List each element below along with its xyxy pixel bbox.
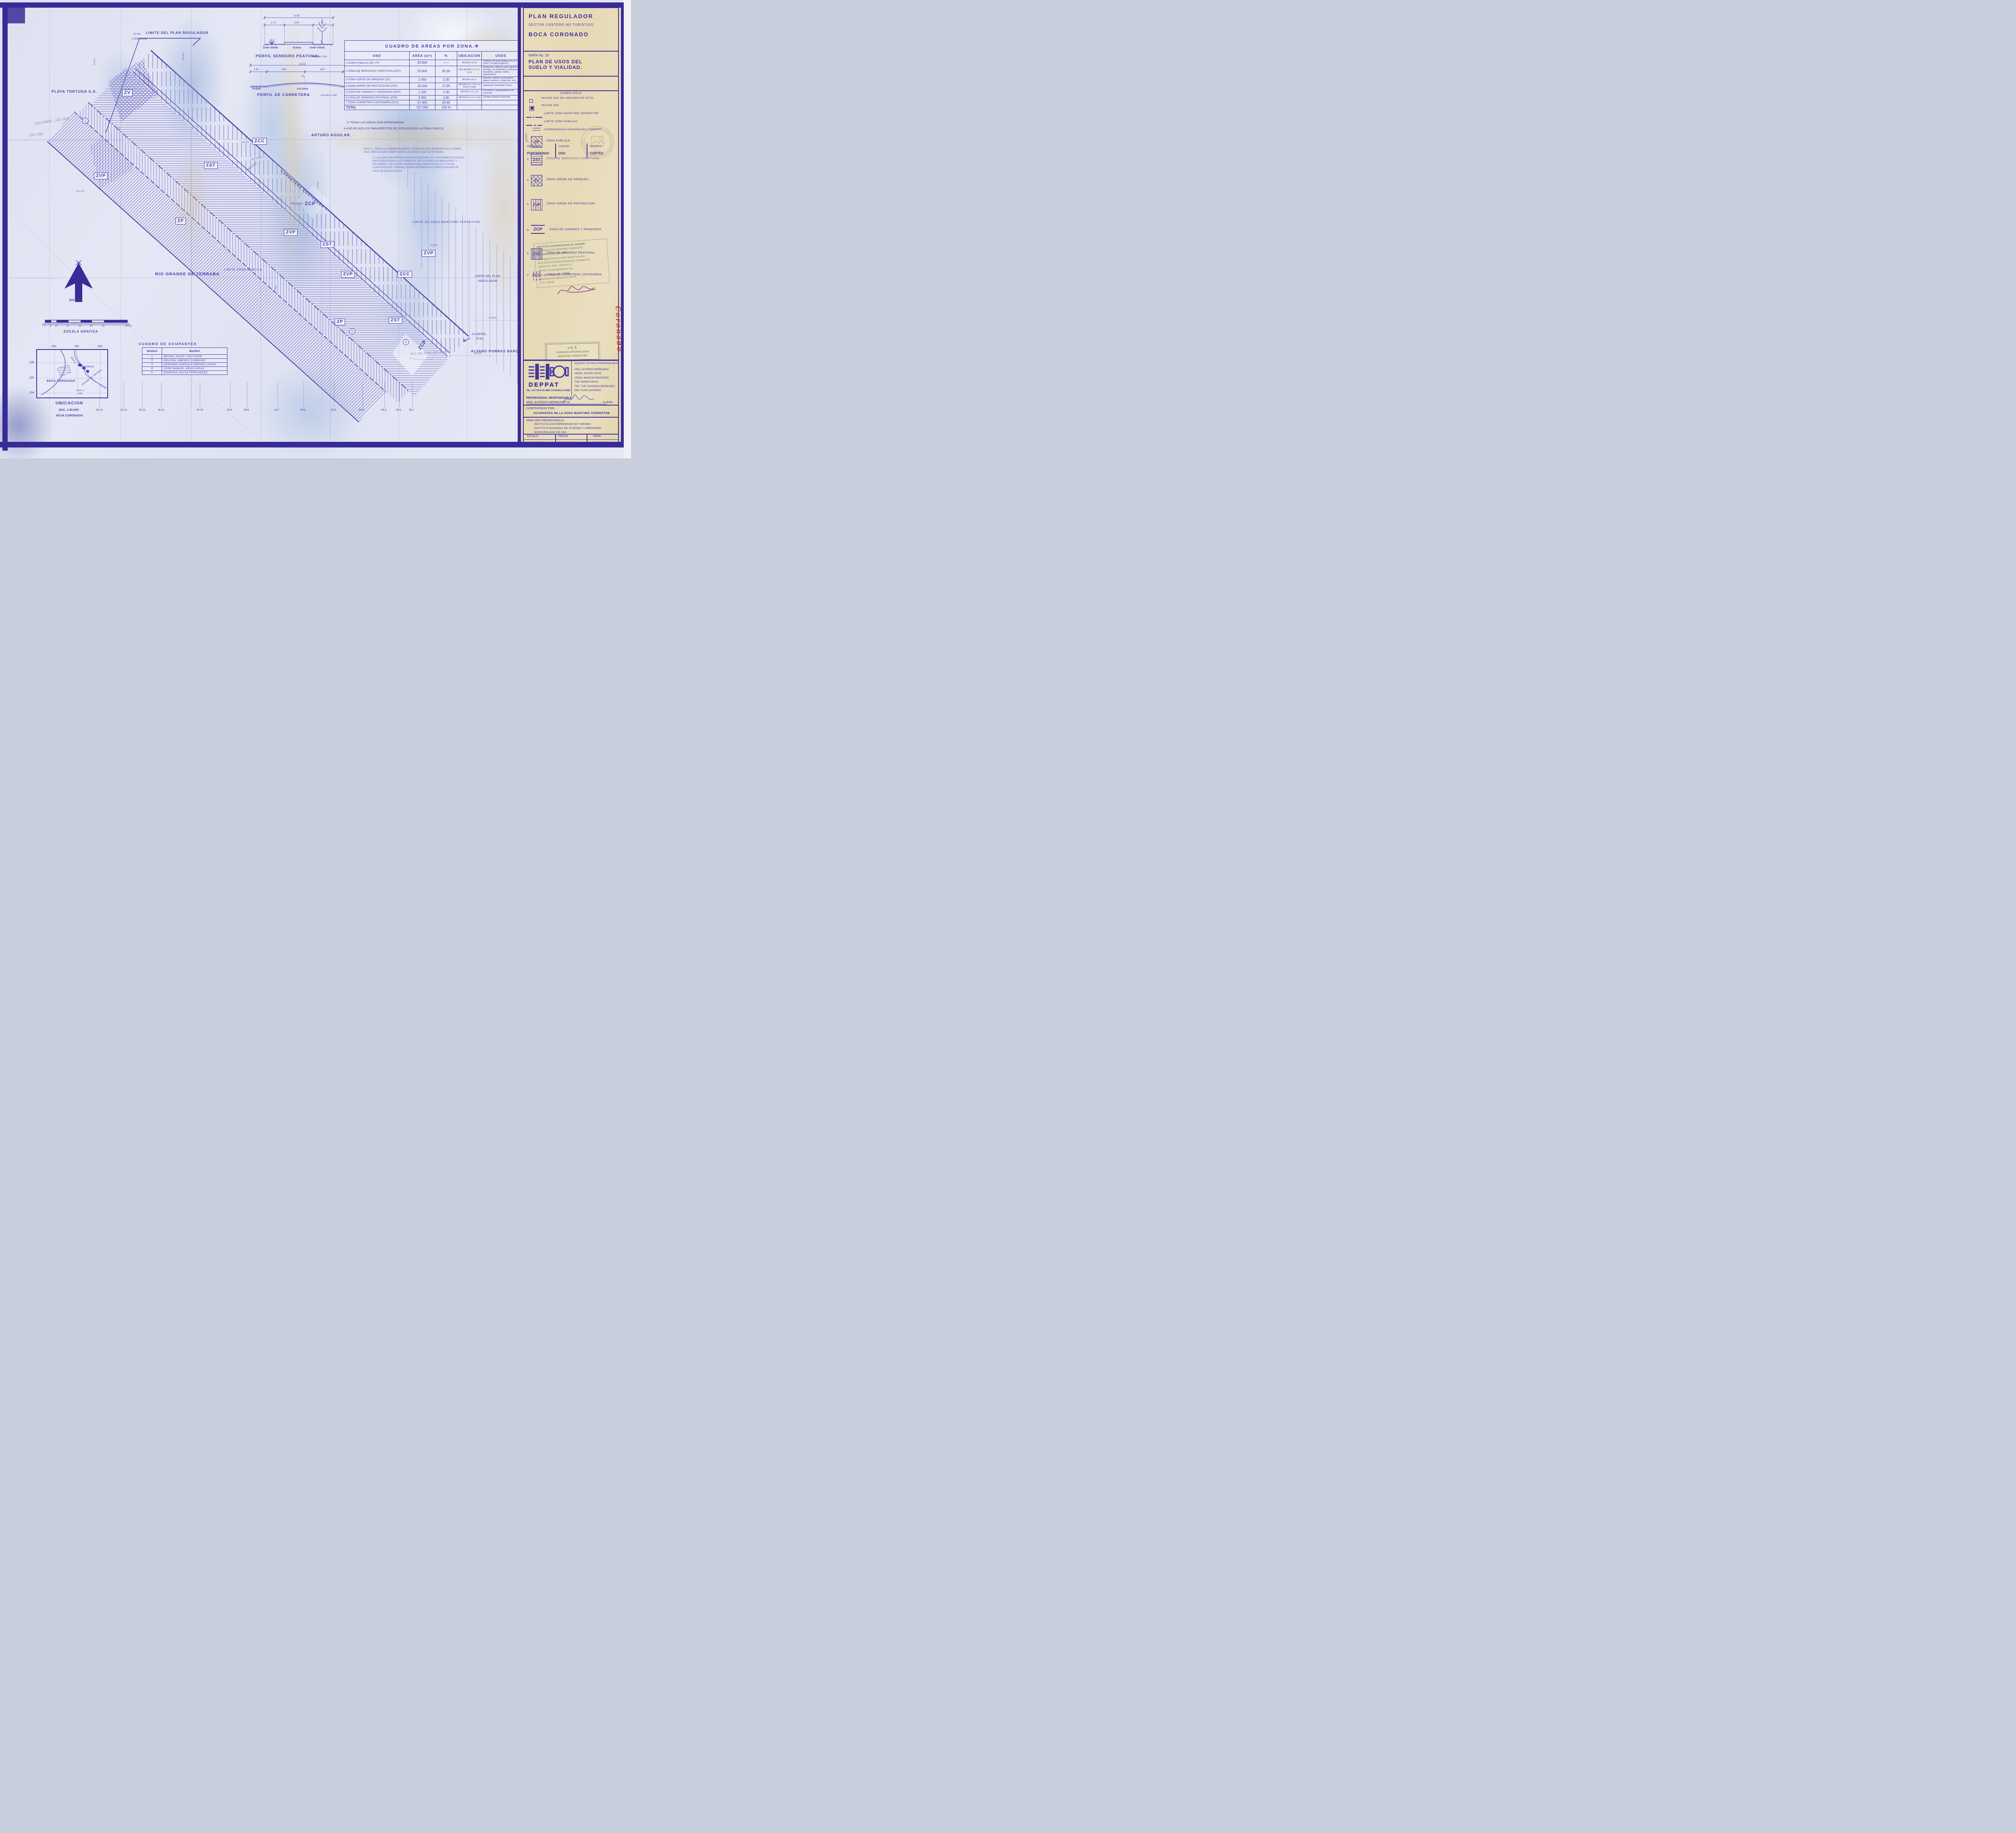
contratado-value: OCUPANTES DE LA ZONA MARITIMO TERRESTRE (533, 411, 610, 415)
ocupantes-row: 4JOSE MANUEL ARIAS ARIAS (142, 367, 227, 371)
cell-ubicacion: DEL MOJON 1-5, 6-7, 8-14 (457, 66, 482, 77)
legend-row-zv: 3 ZV ZONA VERDE DE PARQUES. (527, 175, 615, 189)
relleno-label-2: RELLENO (291, 203, 302, 205)
inset-coord-502: 502 (98, 345, 102, 348)
carretera-dim-2: 3.50 (281, 69, 286, 71)
cell-ubicacion: MOJON 14 y 1 (457, 77, 482, 83)
divider (524, 439, 618, 440)
ocupantes-row: 5RODRIGO SALAS FERNANDEZ (142, 371, 227, 375)
frame-left (2, 2, 8, 451)
cell-empty (457, 105, 482, 110)
zone-tag-zvp-left: ZVP (94, 173, 108, 179)
divider (524, 434, 618, 435)
cell-total-area: 107.000 (409, 105, 435, 110)
areas-header-usos: USOS (482, 52, 520, 60)
ocupantes-row: 3GERARDO ENRIQUE BRENES ARIAS (142, 363, 227, 367)
cell-total-label: TOTAL (345, 105, 410, 110)
title-block-panel: PLAN REGULADOR SECTOR COSTERO NO TURISTI… (521, 3, 623, 447)
areas-header-row: USO AREA (m²) % UBICACION USOS (345, 52, 520, 60)
simbologia-title: SIMBOLOGIA (524, 92, 618, 95)
cell-uso: 6 ZONA DE SENDERO PEATONAL (ZSP) (345, 95, 410, 100)
equipo-member: TOP. MARIO ARAYA (575, 380, 615, 384)
legend-num: 6 (527, 252, 529, 255)
deppat-logo (527, 363, 569, 381)
playa-tortuga-label: PLAYA TORTUGA S.A. (52, 89, 97, 94)
limite-zmt-label: LIMITE DE ZONA MARITIMO TERRESTRE (412, 221, 480, 224)
ocupantes-table: Número Nombre 1BRUNO JOSEF LÖSTCHER 2NEL… (142, 347, 227, 375)
inset-coord-500: 500 (52, 345, 56, 348)
legend-num: 5 (527, 229, 529, 232)
escala-grafica-label: ESCALA GRAFICA (64, 330, 98, 333)
legend-num: 2 (527, 158, 529, 161)
mojon-label: M-11 (158, 409, 164, 412)
carretera-dim-total: 10.00 (299, 63, 306, 66)
mojon-label: M-1 (409, 409, 414, 412)
presentado-label: PARA SER PRESENTADO A: (526, 418, 564, 422)
areas-row-6: 6 ZONA DE SENDERO PEATONAL (ZSP) 3.050 2… (345, 95, 520, 100)
north-arrow-icon (65, 260, 93, 302)
carretera-dim-3: 3.50 (320, 69, 325, 71)
cell-pct: 2,85 (435, 95, 457, 100)
legend-label: ZONA DE CAMINOS Y PARQUEOS. (550, 228, 602, 231)
zone-swatch-zv: ZV (531, 175, 542, 186)
areas-header-pct: % (435, 52, 457, 60)
cell-num: 1 (142, 355, 162, 359)
escala-label: ESCALA (527, 435, 538, 438)
cell-num: 4 (142, 367, 162, 371)
limite-zp-label: LIMITE ZONA PUBLICA (224, 268, 262, 271)
zone-tag-zcc-right: ZCC (398, 271, 412, 278)
contratado-label: CONTRATADO POR: (526, 406, 555, 410)
areas-row-7: 7 ZONA CARRETERA COSTANERA (ZCC) 27.400 … (345, 100, 520, 105)
sym-label-mojon-open: MOJON IGN NO UBICADO EN SITIO (541, 97, 594, 100)
equipo-member: ARQ. ALFREDO BERMUDEZ (575, 368, 615, 372)
cell-nombre: JOSE MANUEL ARIAS ARIAS (162, 367, 227, 371)
sym-label-mojon: MOJON IGN (541, 104, 559, 107)
ict-line3: MARITIMO TERRESTRE (548, 354, 598, 359)
zone-tag-zvp-right: ZVP (422, 250, 435, 257)
coord-335400: 335400 (489, 317, 497, 319)
coord-501400: 501400 (317, 181, 319, 189)
inset-coord-501: 501 (75, 345, 79, 348)
cell-usos: Circulación y aparqueamiento de vehículo… (482, 89, 520, 95)
cell-uso: 3 ZONA VERDE DE PARQUES (ZV) (345, 77, 410, 83)
dashdot-line-icon (526, 117, 542, 118)
equipo-member: TEC. TUR. EUGENIO BERMUDEZ (575, 385, 615, 389)
zone-tag-zst-center: ZST (321, 241, 334, 248)
ubicacion-hoja: HOJA CORONADO (56, 414, 83, 417)
inset-lodo-label: lodo (78, 393, 82, 395)
sym-zmt-line (526, 114, 542, 121)
legend-label: ZONA PUBLICA. (546, 139, 571, 142)
circled-number-3: 3 (403, 339, 409, 345)
divider (524, 360, 618, 361)
inset-coord-336: 336 (29, 361, 34, 364)
scanner-edge (624, 0, 631, 458)
inset-chacara-label: Chácara (84, 365, 94, 368)
cell-nombre: NELSON JIMENEZ ZUMBADO (162, 359, 227, 363)
fecha-label: FECHA (558, 435, 568, 438)
scale-tick-5: 5 (50, 325, 51, 327)
zone-swatch-zst: ZST (531, 154, 542, 165)
circled-number-5: 5 (349, 328, 355, 334)
cell-ubicacion (457, 100, 482, 105)
zone-tag-zvp-center: ZVP (284, 229, 298, 236)
norte-label: NORTE (69, 298, 83, 302)
areas-note-2: ✳✳NO SE INCLUYE PARA EFECTOS DE TOTALIZA… (344, 127, 444, 130)
carretera-zone-label-2: CALZADA (297, 88, 308, 90)
rio-grande-label: RIO GRANDE DE TERRABA (155, 272, 220, 277)
cell-area: 53.800 (409, 66, 435, 77)
divider (524, 417, 618, 418)
scale-tick-40: 40 (90, 325, 93, 327)
limite-plan-right-1: LIMITE DEL PLAN (475, 274, 500, 278)
scale-tick-10: 10 (55, 325, 58, 327)
mojon-label: M-4 (359, 409, 364, 412)
sendero-dim-3: 1.75 (319, 22, 323, 24)
sheet-title: PLAN REGULADOR (529, 13, 613, 19)
map-note-1: NOTA: 1- TODAS LAS OBSERVACIONES Y DETAL… (364, 148, 464, 154)
ocupantes-row: 2NELSON JIMENEZ ZUMBADO (142, 359, 227, 363)
legend-label: ZONA VERDE DE PROTECCION. (546, 202, 596, 205)
sendero-dim-total: 6.00 (294, 15, 300, 17)
areas-total-row: TOTAL 107.000 100 % (345, 105, 520, 110)
sendero-profile-escala: ESCALA 1:100 (311, 56, 327, 58)
frame-top (0, 2, 624, 8)
coord-335800: 335800 (430, 244, 438, 247)
legend-label: ZONA VERDE DE PARQUES. (546, 178, 590, 181)
equipo-member: GEOG. RAFAEL ARCE (575, 372, 615, 376)
areas-row-5: 5 ZONA DE CAMINOS Y PARQUEOS (ZCP) 1.100… (345, 89, 520, 95)
mojon-label: M-2 (396, 409, 401, 412)
cell-usos (482, 100, 520, 105)
coord-335000: 335.000 (76, 190, 85, 193)
zone-swatch-zvp: ZVP (531, 199, 542, 210)
cell-pct: 17,95 (435, 83, 457, 89)
cell-ubicacion: MOJON 1, 6, y 13 (457, 89, 482, 95)
cell-usos: Restaurant, cafeteria, soda, agencia de … (482, 66, 520, 77)
sym-label-zp: LIMITE ZONA PUBLICA (544, 120, 577, 123)
frame-panel-divider (518, 2, 521, 447)
coord-501100: 501100 (182, 52, 185, 60)
areas-row-3: 3 ZONA VERDE DE PARQUES (ZV) 2.450 2,30 … (345, 77, 520, 83)
limite-plan-right-2: REGULADOR (478, 279, 498, 283)
ocupantes-title: CUADRO DE OCUPANTES (139, 342, 197, 346)
ict-round-stamp: DIRECCION DE PLANEAMIENTO Y DESARROLLO T… (580, 125, 615, 160)
cell-uso: 7 ZONA CARRETERA COSTANERA (ZCC) (345, 100, 410, 105)
cell-pct: 25,60 (435, 100, 457, 105)
ocupantes-header-row: Número Nombre (142, 348, 227, 355)
cell-usos: TODOS LOS QUE SEÑALA LA LEY 6043 Y SU RE… (482, 60, 520, 66)
deppat-name: DEPPAT (529, 381, 560, 388)
cell-area: 2.450 (409, 77, 435, 83)
arturo-aguilar-label: ARTURO AGUILAR. (311, 133, 351, 137)
cell-usos: Deportes, arboles ornamentales, juegos, … (482, 77, 520, 83)
cell-area: 27.400 (409, 100, 435, 105)
carretera-cl-label: CL (302, 75, 305, 78)
inset-areno-label: Areno y (77, 389, 84, 392)
ubicacion-caption: UBICACION (56, 401, 83, 406)
cell-area: 19.200 (409, 83, 435, 89)
ubicacion-escala: ESC. 1:50.000 (59, 408, 79, 412)
mojon-label: M-3 (381, 409, 386, 412)
map-note-2: 2- LAS ZONAS DE PROTECCION DE ALCANTARIL… (364, 156, 464, 173)
legend-num: 3 (527, 179, 529, 182)
sendero-zone-label-3: ZONA VERDE (310, 47, 325, 49)
zone-tag-zp-left: ZP (175, 218, 186, 225)
areas-row-2: 2 ZONA DE SERVICIOS TURISTICOS (ZST) 53.… (345, 66, 520, 77)
carretera-zone-label-1: ACERA (252, 88, 261, 90)
ict-box-stamp: I. C. T. COMISION INTERNA ZONA MARITIMO … (546, 343, 599, 361)
sendero-profile-title: PERFIL SENDERO PEATONAL (256, 54, 320, 58)
zone-tag-zcc-upper: ZCC (252, 138, 267, 145)
km41-label-2: A DOMINICAL (131, 38, 147, 40)
legend-num: 7 (527, 274, 529, 277)
mojon-label: M-6 (300, 409, 305, 412)
mojon-label: M-14 (96, 409, 103, 412)
cell-area: 1.100 (409, 89, 435, 95)
cell-nombre: GERARDO ENRIQUE BRENES ARIAS (162, 363, 227, 367)
coord-335700: 335700 (241, 141, 249, 144)
areas-header-ubicacion: UBICACION (457, 52, 482, 60)
legend-row-zcp: 5 ZCP ZONA DE CAMINOS Y PARQUEOS. (527, 225, 615, 239)
coord-500000: 500000 (94, 58, 96, 65)
sym-coord-horizontal: 335600 (533, 127, 541, 131)
zone-tag-zcp-center: ZCP (303, 201, 317, 207)
sym-mojon-filled (529, 105, 534, 112)
mojon-open-square-icon (529, 99, 533, 103)
cell-usos: Vegetación ornamental y flores (482, 83, 520, 89)
cell-num: 5 (142, 371, 162, 375)
limite-plan-top-label: LIMITE DEL PLAN REGULADOR (146, 31, 208, 35)
cell-pct: 1,00 (435, 89, 457, 95)
plan-limit-bracket (140, 38, 200, 46)
ocupantes-header-numero: Número (142, 348, 162, 355)
areas-row-4: 4 ZONA VERDE DE PROTECCION (ZVP) 19.200 … (345, 83, 520, 89)
cell-uso: 2 ZONA DE SERVICIOS TURISTICOS (ZST) (345, 66, 410, 77)
cell-empty (482, 105, 520, 110)
mojon-label: M-9 (227, 409, 232, 412)
legend-num: 1 (527, 140, 529, 143)
corner-blotch (2, 2, 25, 23)
sym-mojon-open (529, 98, 533, 105)
dashed-line-icon (526, 125, 542, 126)
sendero-zone-label-2: ACERA (293, 47, 301, 49)
presentado-item: INSTITUTO NACIONAL DE VIVIENDA Y URBANIS… (534, 427, 601, 431)
frame-bottom (0, 442, 624, 447)
carretera-profile-escala: ESCALA.1:100 (321, 94, 337, 97)
map-note-block: NOTA: 1- TODAS LAS OBSERVACIONES Y DETAL… (364, 148, 464, 173)
sendero-dim-2: 2.50 (294, 22, 299, 24)
bush-icon (269, 39, 275, 44)
cell-num: 3 (142, 363, 162, 367)
cell-ubicacion: MOJON 5-6, 7-14 y 14 frente a talud (457, 83, 482, 89)
areas-table-title: CUADRO DE AREAS POR ZONA.✳ (345, 41, 520, 52)
cell-area: 3.050 (409, 95, 435, 100)
mapa-number: MAPA No. 20 (529, 53, 613, 57)
cell-ubicacion: MOJON 1-5, 6-7, 9-14 (457, 95, 482, 100)
carretera-profile-title: PERFIL DE CARRETERA (257, 93, 310, 97)
scale-end-label: 100 m. (125, 325, 132, 327)
cell-usos: Sendero peatonal arborizado (482, 95, 520, 100)
cell-total-pct: 100 % (435, 105, 457, 110)
scale-tick-0: 0 (44, 325, 45, 327)
blueprint-sheet: LIMITE DEL PLAN REGULADOR 41 Km. A DOMIN… (0, 0, 631, 458)
areas-header-area: AREA (m²) (409, 52, 435, 60)
presentado-list: INSTITUTO COSTARRICENSE DE TURISMO INSTI… (534, 422, 601, 435)
cell-nombre: BRUNO JOSEF LÖSTCHER (162, 355, 227, 359)
equipo-member: GEOG. MARCOS MONTERO (575, 376, 615, 380)
equipo-title: EQUIPO TECNICO RESPONSABLE (575, 362, 618, 365)
sheet-area-name: BOCA CORONADO (529, 31, 613, 37)
prof-reg: A-4043. (603, 400, 613, 404)
legend-num: 4 (527, 203, 529, 206)
sheet-subtitle: SECTOR COSTERO NO TURISTICO (529, 23, 613, 27)
a-cortes-label-2: 20 km. (476, 337, 484, 340)
cell-pct: —— (435, 60, 457, 66)
svg-text:I.C.T.: I.C.T. (594, 150, 601, 152)
areas-row-1: 1 ZONA PUBLICA (ZP) ✳✳ 33.900 —— MOJON 1… (345, 60, 520, 66)
zone-tag-zst-bottom: ZST (389, 317, 402, 324)
areas-note-1: ✳ TODAS LAS AREAS SON APROXIMADAS (347, 121, 404, 124)
zone-tag-zvp-bottom: ZVP (341, 271, 355, 278)
cell-uso: 1 ZONA PUBLICA (ZP) ✳✳ (345, 60, 410, 66)
zone-swatch-zcp: ZCP (531, 225, 545, 234)
zone-band-zst (91, 68, 448, 396)
ocupantes-header-nombre: Nombre (162, 348, 227, 355)
cell-area: 33.900 (409, 60, 435, 66)
cell-uso: 5 ZONA DE CAMINOS Y PARQUEOS (ZCP) (345, 89, 410, 95)
cell-nombre: RODRIGO SALAS FERNANDEZ (162, 371, 227, 375)
scale-tick-50: 50 (102, 325, 105, 327)
inset-coord-334: 334 (29, 391, 34, 394)
cell-ubicacion: MOJON 1 al 14 (457, 60, 482, 66)
areas-header-uso: USO (345, 52, 410, 60)
coord-335300: 335300 (474, 352, 482, 355)
circled-number-1: 1 (82, 118, 88, 124)
divider (524, 405, 618, 406)
cell-uso: 4 ZONA VERDE DE PROTECCION (ZVP) (345, 83, 410, 89)
km41-label-1: 41 Km. (133, 33, 141, 35)
sym-label-zmt: LIMITE ZONA MARITIMO TERRESTRE (544, 112, 599, 115)
mojon-label: M-8 (244, 409, 249, 412)
mojon-label: M-7 (275, 409, 279, 412)
signature-icon (555, 281, 604, 298)
zone-tag-zp-bottom: ZP (335, 318, 345, 325)
presentado-item: INSTITUTO COSTARRICENSE DE TURISMO (534, 422, 601, 427)
zone-tag-zv: ZV (122, 89, 133, 96)
divider (524, 90, 618, 91)
zone-swatch-zp: ZP (531, 136, 542, 148)
scale-tick-20: 20 (67, 325, 69, 327)
mojon-label: M-5 (331, 409, 336, 412)
scale-tick-30: 30 (79, 325, 81, 327)
mojon-filled-square-icon (529, 106, 534, 111)
cell-num: 2 (142, 359, 162, 363)
zone-tag-zst-upper: ZST (204, 162, 218, 169)
sendero-zone-label-1: ZONA VERDE (263, 47, 278, 49)
sendero-dim-1: 1.75 (271, 22, 276, 24)
legend-row-zvp: 4 ZVP ZONA VERDE DE PROTECCION. (527, 199, 615, 213)
approval-stamp: INSTITUTO COSTARRICENSE DE TURISMO COMIS… (533, 239, 610, 288)
panel-frame: PLAN REGULADOR SECTOR COSTERO NO TURISTI… (523, 7, 619, 447)
map-title-line2: SUELO Y VIALIDAD. (529, 64, 613, 70)
scale-bar (42, 320, 130, 325)
divider (571, 360, 572, 396)
areas-table: CUADRO DE AREAS POR ZONA.✳ USO AREA (m²)… (344, 40, 520, 110)
mojon-label: M-12 (139, 409, 146, 412)
mapa-label: MAPA (593, 435, 601, 438)
cell-pct: 2,30 (435, 77, 457, 83)
inset-coord-335: 335 (29, 377, 34, 379)
carretera-dim-1: 1.50 (254, 69, 259, 71)
inset-boca-coronado-label: BOCA CORONADO (47, 380, 75, 383)
mojon-label: M-10 (197, 409, 203, 412)
areas-title-row: CUADRO DE AREAS POR ZONA.✳ (345, 41, 520, 52)
cell-pct: 50,30 (435, 66, 457, 77)
equipo-list: ARQ. ALFREDO BERMUDEZ GEOG. RAFAEL ARCE … (575, 368, 615, 393)
map-title-line1: PLAN DE USOS DEL (529, 59, 613, 64)
a-cortes-label-1: A CORTES (472, 333, 486, 336)
ocupantes-row: 1BRUNO JOSEF LÖSTCHER (142, 355, 227, 359)
mojon-label: M-13 (121, 409, 127, 412)
